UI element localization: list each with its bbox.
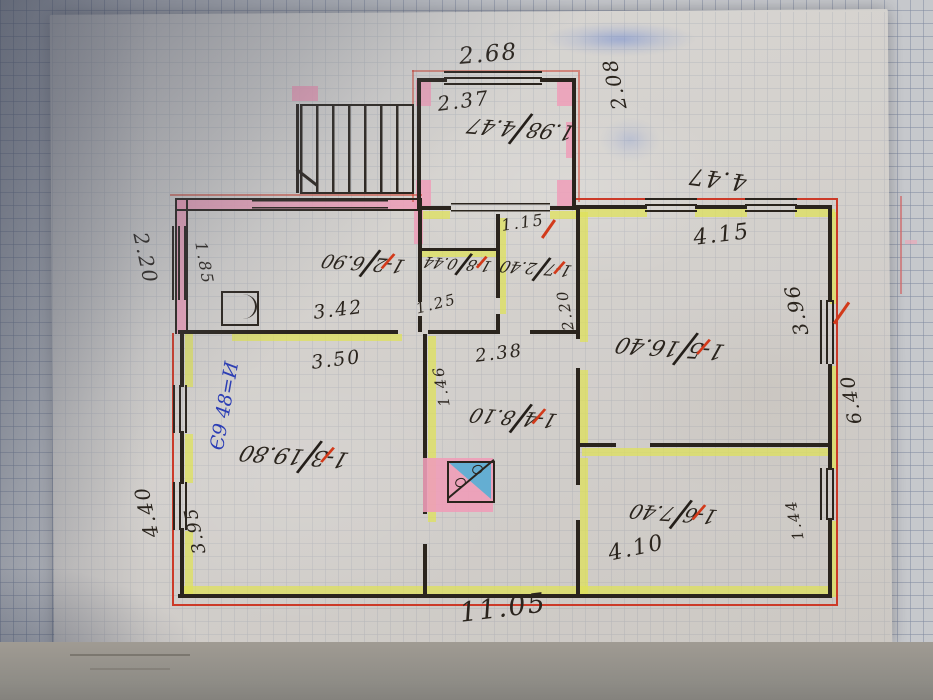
table-faint-line xyxy=(70,654,190,656)
table-faint-line xyxy=(90,668,170,670)
table-surface xyxy=(0,642,933,700)
floor-plan-photo: 2.68 2.37 2.08 4.47 4.15 3.96 6.40 1.44 … xyxy=(0,0,933,700)
camera-shadow-bottom-left xyxy=(0,0,933,700)
